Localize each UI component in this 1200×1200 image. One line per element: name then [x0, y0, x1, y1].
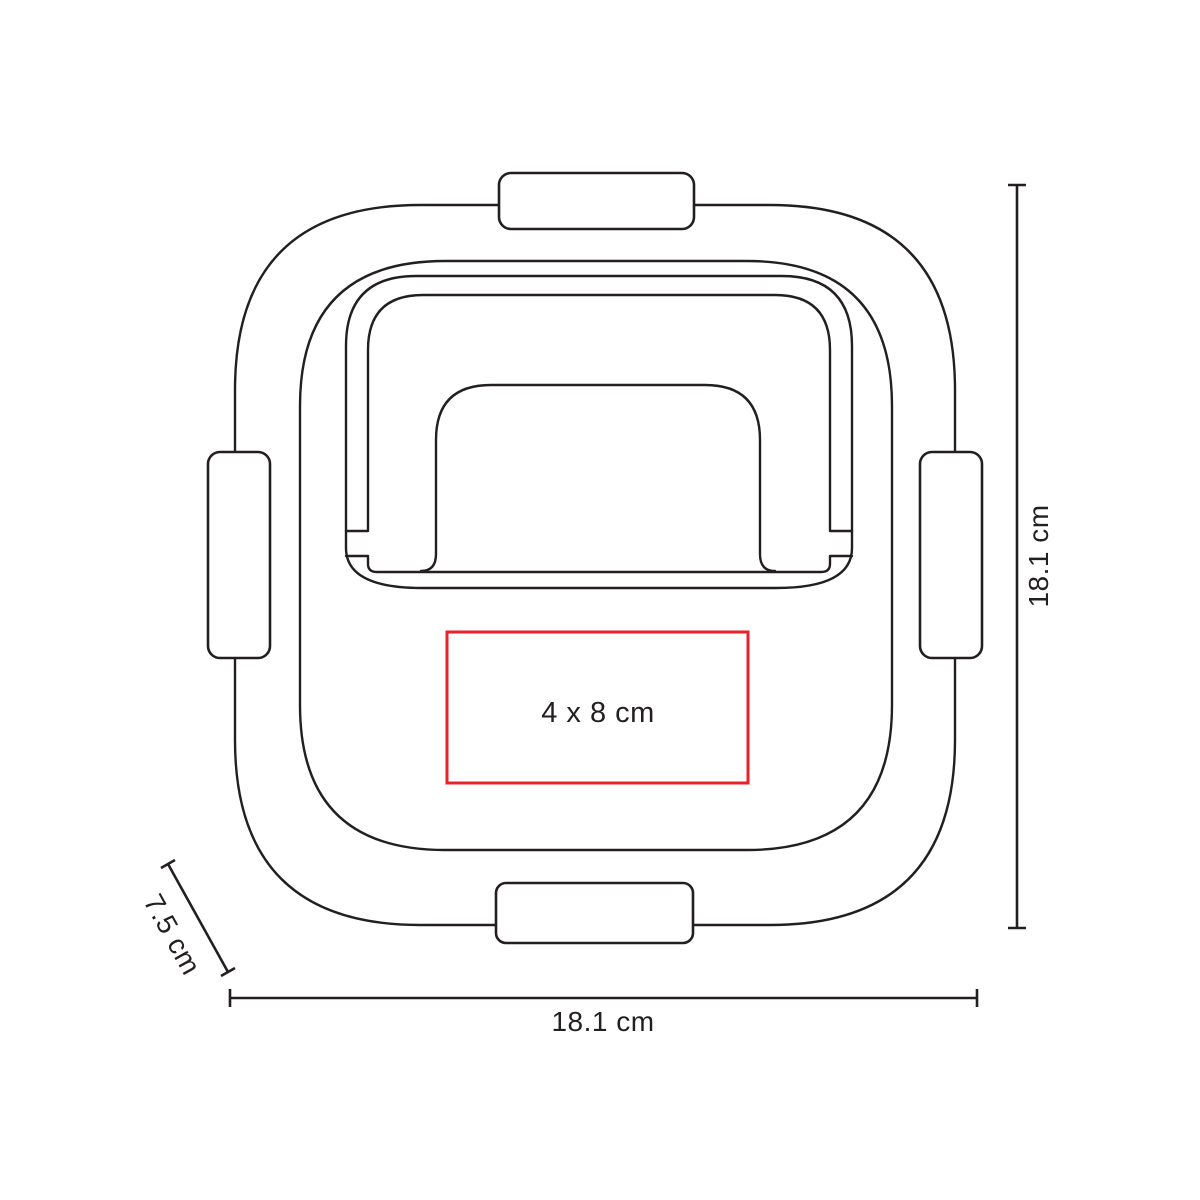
handle-hinge-bar — [346, 556, 852, 572]
container-outlines — [235, 205, 955, 925]
latch-tabs — [208, 173, 982, 943]
lunchbox-top-view-drawing: 4 x 8 cm 18.1 cm 18.1 cm 7.5 cm — [0, 0, 1200, 1200]
lid-recess-outer-outline — [346, 276, 852, 588]
width-dimension-label: 18.1 cm — [551, 1006, 654, 1037]
product-dimension-diagram: 4 x 8 cm 18.1 cm 18.1 cm 7.5 cm — [0, 0, 1200, 1200]
latch-right — [920, 452, 982, 658]
latch-left — [208, 452, 270, 658]
latch-bottom — [496, 883, 693, 943]
lid-recess-inner-outline — [346, 295, 852, 531]
print-area-label: 4 x 8 cm — [541, 697, 655, 729]
width-dimension: 18.1 cm — [230, 989, 977, 1037]
handle-outline — [421, 385, 775, 571]
latch-top — [499, 173, 694, 229]
depth-dimension-label: 7.5 cm — [138, 889, 207, 980]
print-area: 4 x 8 cm — [447, 632, 748, 783]
depth-dimension: 7.5 cm — [138, 860, 235, 980]
depth-dimension-tick-top — [161, 860, 175, 868]
depth-dimension-tick-bottom — [221, 968, 235, 976]
height-dimension: 18.1 cm — [1008, 185, 1054, 928]
height-dimension-label: 18.1 cm — [1023, 504, 1054, 607]
lid-rim-outline — [300, 261, 892, 850]
